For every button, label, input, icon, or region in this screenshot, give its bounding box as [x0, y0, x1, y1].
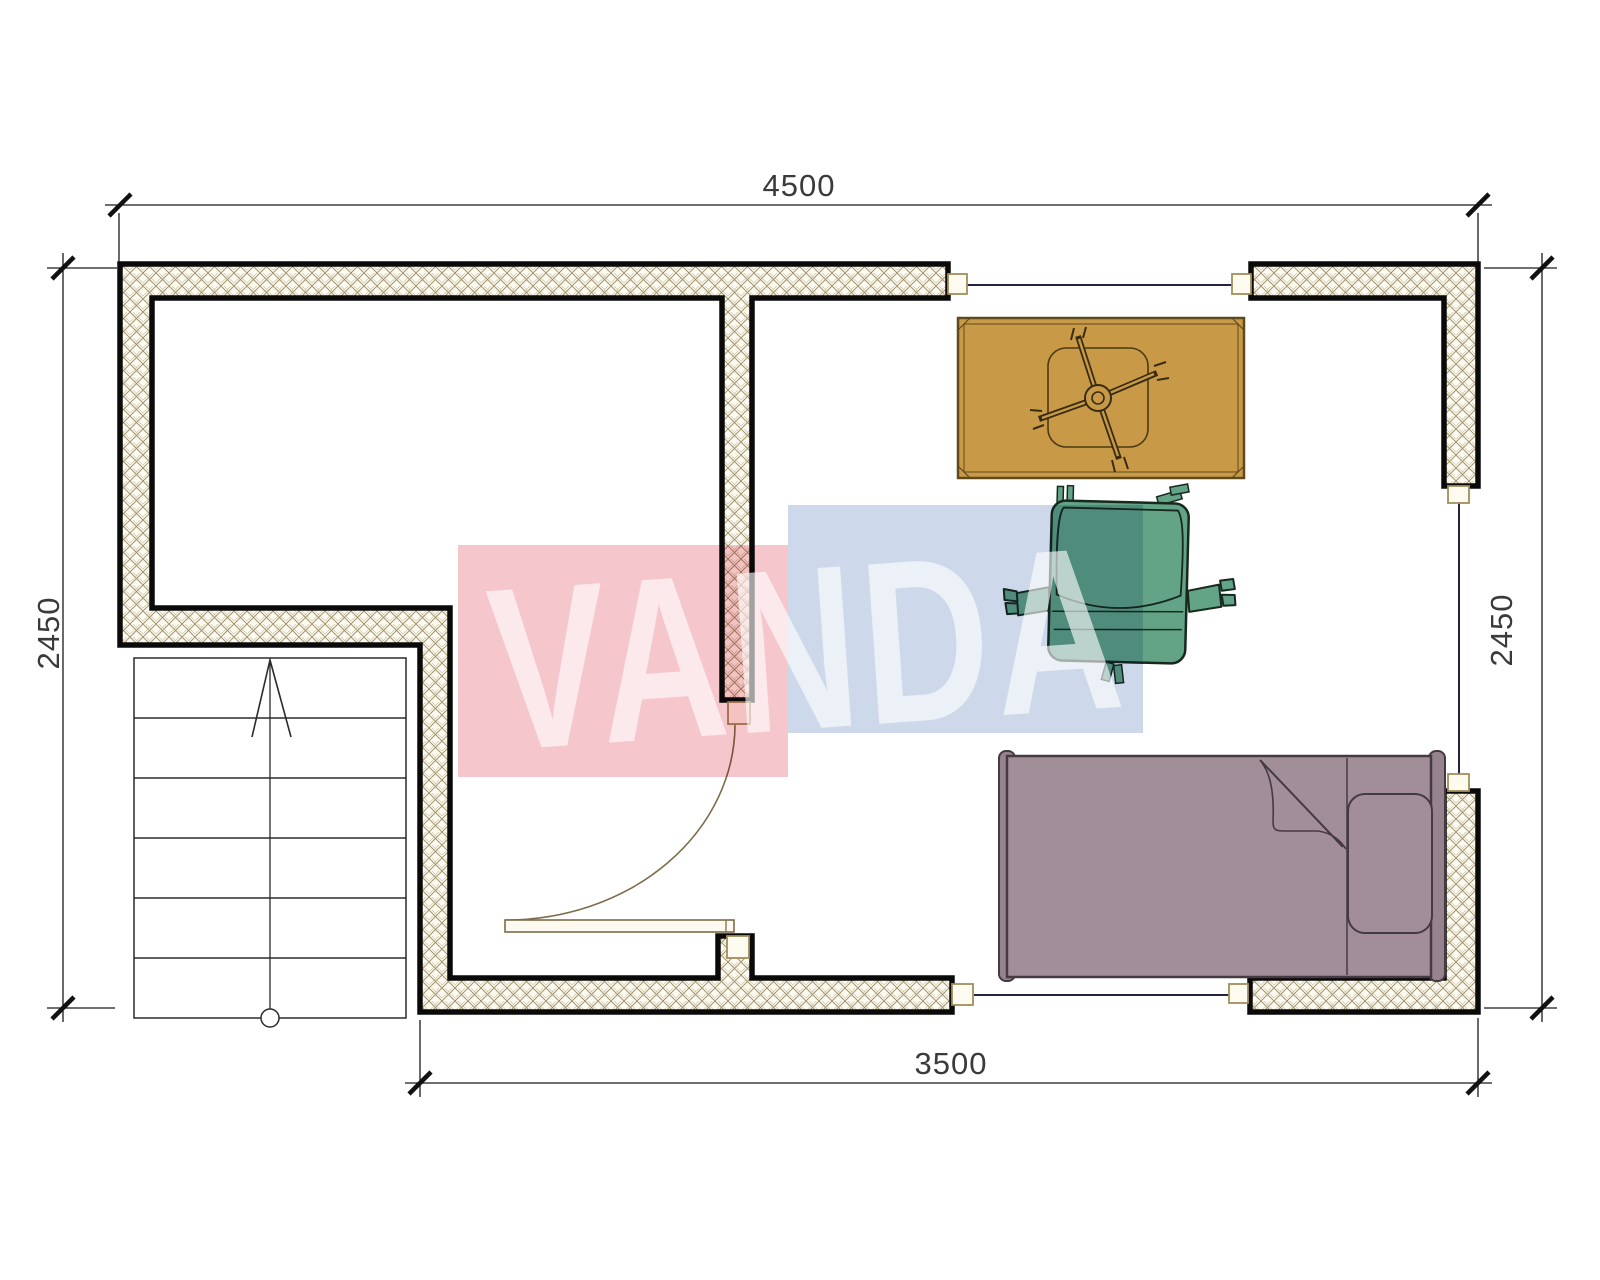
window-frame-icon — [1448, 486, 1469, 503]
wall-top-right — [1251, 264, 1478, 486]
window-frame-icon — [1229, 984, 1248, 1003]
dimension-label-right: 2450 — [1484, 550, 1520, 710]
window-frame-icon — [1232, 274, 1251, 294]
floor-plan-canvas: VANDA 4500 3500 2450 2450 — [0, 0, 1600, 1280]
bed-pillow — [1348, 794, 1432, 933]
dimension-label-left: 2450 — [31, 553, 67, 713]
stair-walk-start-icon — [261, 1009, 279, 1027]
window-frame-icon — [948, 274, 967, 294]
staircase — [134, 658, 406, 1027]
window-frame-icon — [1448, 774, 1469, 791]
dimension-label-bottom: 3500 — [871, 1046, 1031, 1082]
door-frame-icon — [727, 936, 749, 958]
dimension-label-top: 4500 — [719, 168, 879, 204]
window-frame-icon — [952, 984, 973, 1005]
watermark-text: VANDA — [482, 512, 1133, 788]
single-bed — [999, 751, 1445, 981]
door-leaf — [505, 920, 734, 932]
